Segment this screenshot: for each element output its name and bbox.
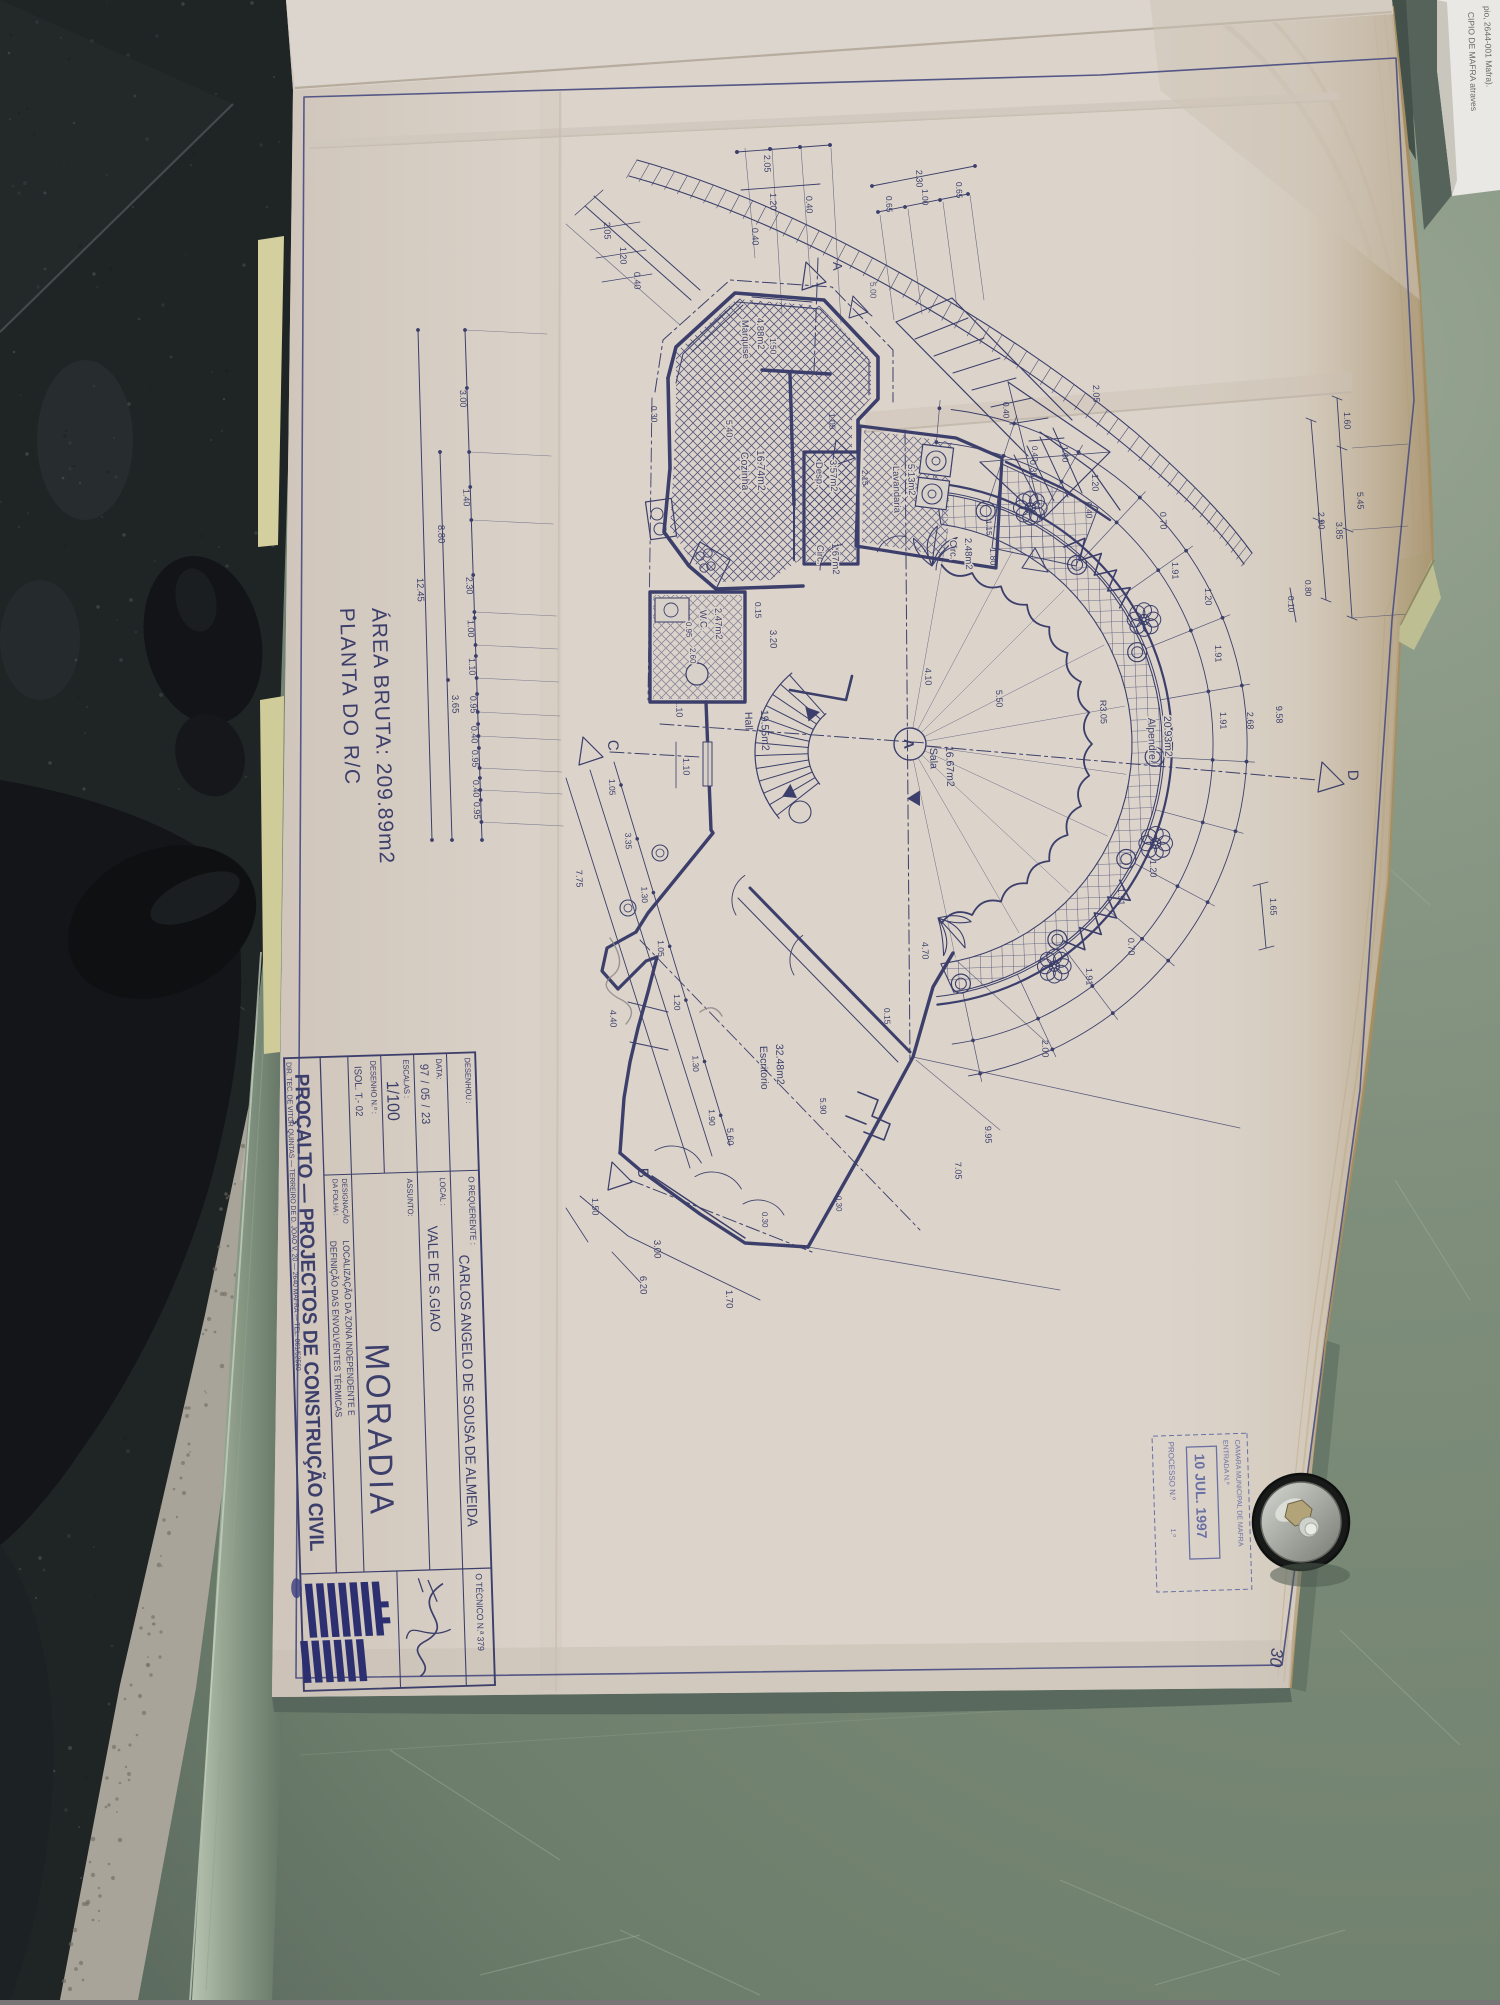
svg-text:0.40: 0.40 [750, 228, 761, 246]
svg-text:5.00: 5.00 [868, 282, 879, 299]
svg-text:4.10: 4.10 [923, 668, 934, 686]
svg-text:2.05: 2.05 [1091, 385, 1102, 403]
svg-text:3.20: 3.20 [767, 630, 779, 649]
svg-text:1.91: 1.91 [1213, 645, 1224, 663]
svg-text:A: A [830, 262, 845, 271]
svg-text:1.50: 1.50 [590, 1198, 601, 1216]
svg-text:2.68: 2.68 [1245, 712, 1256, 730]
svg-text:1.00: 1.00 [920, 189, 931, 206]
svg-text:2.30: 2.30 [464, 577, 475, 595]
svg-text:1.00: 1.00 [466, 620, 477, 638]
svg-text:3.00: 3.00 [651, 1240, 663, 1259]
svg-text:0.30: 0.30 [834, 1196, 844, 1212]
svg-text:Lavandaria: Lavandaria [890, 466, 902, 514]
svg-text:1.65: 1.65 [1268, 898, 1279, 916]
svg-text:2.30: 2.30 [914, 170, 925, 188]
svg-text:1.70: 1.70 [723, 1290, 735, 1309]
svg-text:10 JUL. 1997: 10 JUL. 1997 [1192, 1453, 1211, 1539]
svg-text:1.30: 1.30 [639, 886, 650, 903]
svg-text:0.95: 0.95 [472, 802, 483, 820]
svg-text:4.88m2: 4.88m2 [754, 318, 766, 350]
svg-text:Desp.: Desp. [813, 462, 825, 487]
svg-text:8.80: 8.80 [435, 525, 447, 544]
svg-text:1.10: 1.10 [674, 700, 685, 718]
svg-text:DA FOLHA :: DA FOLHA : [330, 1179, 338, 1216]
svg-text:1.20: 1.20 [672, 994, 683, 1011]
svg-text:4.40: 4.40 [608, 1010, 619, 1028]
svg-text:1.20: 1.20 [618, 247, 629, 265]
svg-text:1.50: 1.50 [768, 338, 779, 355]
svg-text:7.05: 7.05 [953, 1162, 964, 1180]
svg-text:LOCAL :: LOCAL : [438, 1177, 448, 1206]
svg-text:3.65: 3.65 [449, 695, 461, 714]
svg-text:6.20: 6.20 [637, 1276, 649, 1295]
svg-text:0.30: 0.30 [649, 406, 660, 423]
svg-text:1.90: 1.90 [707, 1109, 718, 1126]
svg-text:1/100: 1/100 [383, 1081, 403, 1122]
svg-text:5.90: 5.90 [818, 1098, 829, 1115]
svg-text:1.05: 1.05 [656, 940, 667, 957]
svg-text:5.60: 5.60 [725, 1128, 736, 1146]
svg-text:2.05: 2.05 [762, 155, 773, 173]
svg-text:4.70: 4.70 [920, 942, 931, 960]
svg-text:ENTRADA N.º: ENTRADA N.º [1221, 1440, 1229, 1485]
svg-text:ESCALAS :: ESCALAS : [401, 1059, 411, 1098]
svg-text:0.95: 0.95 [470, 750, 481, 768]
svg-text:2.48m2: 2.48m2 [962, 538, 974, 570]
svg-text:5.40: 5.40 [724, 420, 735, 438]
svg-text:1.30: 1.30 [691, 1055, 702, 1072]
svg-text:0.40: 0.40 [1030, 446, 1040, 462]
svg-text:7.75: 7.75 [574, 870, 585, 888]
svg-text:1.15: 1.15 [984, 520, 994, 536]
svg-text:1.60: 1.60 [1342, 412, 1353, 430]
svg-text:1.91: 1.91 [1116, 888, 1127, 906]
svg-text:1.91: 1.91 [1170, 562, 1181, 580]
svg-text:1.91: 1.91 [1084, 968, 1095, 986]
svg-text:16.74m2: 16.74m2 [754, 450, 767, 491]
svg-text:0.15: 0.15 [882, 1008, 893, 1025]
svg-text:12.45: 12.45 [414, 578, 426, 602]
svg-text:9.58: 9.58 [1274, 706, 1285, 724]
svg-text:1.20: 1.20 [1203, 588, 1214, 606]
svg-text:Hall: Hall [742, 712, 755, 730]
svg-text:16.67m2: 16.67m2 [943, 746, 956, 787]
svg-text:1.05: 1.05 [827, 413, 838, 430]
svg-text:1.10: 1.10 [467, 658, 478, 676]
svg-text:2.47m2: 2.47m2 [712, 608, 724, 640]
svg-text:1.20: 1.20 [1148, 860, 1159, 878]
svg-text:1.20: 1.20 [1090, 474, 1101, 492]
svg-text:1.º: 1.º [1169, 1529, 1176, 1538]
svg-text:0.70: 0.70 [1158, 512, 1169, 530]
svg-text:A: A [901, 739, 917, 750]
svg-text:0.10: 0.10 [1286, 596, 1297, 613]
svg-text:MORADIA: MORADIA [358, 1343, 402, 1518]
svg-text:0.30: 0.30 [760, 1212, 770, 1228]
svg-text:1.05: 1.05 [607, 779, 618, 796]
svg-text:DATA:: DATA: [434, 1058, 444, 1079]
svg-text:0.95: 0.95 [684, 622, 694, 638]
svg-text:5.45: 5.45 [1355, 492, 1366, 510]
svg-text:2.60: 2.60 [688, 648, 698, 664]
svg-text:0.70: 0.70 [1126, 938, 1137, 956]
svg-text:0.15: 0.15 [753, 602, 764, 619]
svg-text:1.10: 1.10 [681, 758, 692, 776]
svg-text:VALE DE S.GIAO: VALE DE S.GIAO [424, 1225, 444, 1332]
svg-text:1.91: 1.91 [1218, 712, 1229, 730]
svg-text:Circ.: Circ. [947, 540, 959, 560]
svg-text:2.00: 2.00 [1040, 1040, 1051, 1058]
svg-text:9.95: 9.95 [983, 1126, 994, 1144]
svg-text:W.C.: W.C. [697, 610, 709, 631]
svg-text:C: C [604, 740, 621, 752]
svg-text:97 / 05 / 23: 97 / 05 / 23 [417, 1064, 431, 1125]
svg-text:D: D [1344, 770, 1361, 782]
svg-text:Alpendre: Alpendre [1145, 718, 1158, 761]
svg-text:Marquise: Marquise [739, 320, 751, 359]
svg-text:3.00: 3.00 [458, 390, 469, 408]
svg-text:2.15: 2.15 [860, 470, 870, 486]
svg-text:Cozinha: Cozinha [738, 452, 751, 491]
svg-text:Circ.: Circ. [814, 545, 826, 565]
svg-text:5.13m2: 5.13m2 [905, 464, 917, 496]
svg-text:3.85: 3.85 [1334, 522, 1345, 540]
svg-text:32.48m2: 32.48m2 [773, 1044, 786, 1085]
svg-text:0.40: 0.40 [632, 272, 643, 290]
svg-text:20.93m2: 20.93m2 [1161, 716, 1174, 757]
svg-text:ISOL. T.- 02: ISOL. T.- 02 [351, 1066, 364, 1117]
svg-text:ASSUNTO:: ASSUNTO: [405, 1178, 415, 1216]
svg-text:3.35: 3.35 [623, 833, 634, 850]
svg-text:DESENHOU :: DESENHOU : [463, 1057, 474, 1103]
svg-text:DESENHO N.º :: DESENHO N.º : [368, 1060, 379, 1114]
svg-text:1.20: 1.20 [768, 193, 779, 211]
svg-text:30: 30 [1266, 1647, 1287, 1668]
svg-text:R3.05: R3.05 [1098, 700, 1109, 724]
svg-text:1.40: 1.40 [461, 489, 472, 507]
svg-text:0.65: 0.65 [884, 196, 895, 213]
svg-text:PROCESSO N.º: PROCESSO N.º [1166, 1441, 1177, 1500]
svg-text:1.67m2: 1.67m2 [829, 543, 841, 575]
svg-text:Sala: Sala [927, 748, 940, 770]
svg-text:2.90: 2.90 [1316, 512, 1327, 530]
svg-text:0.65: 0.65 [954, 182, 965, 199]
svg-text:0.80: 0.80 [1303, 580, 1314, 597]
svg-text:B: B [634, 1168, 651, 1179]
svg-text:2.05: 2.05 [602, 222, 613, 240]
svg-text:3.57m2: 3.57m2 [827, 460, 839, 492]
svg-text:5.50: 5.50 [994, 690, 1005, 708]
